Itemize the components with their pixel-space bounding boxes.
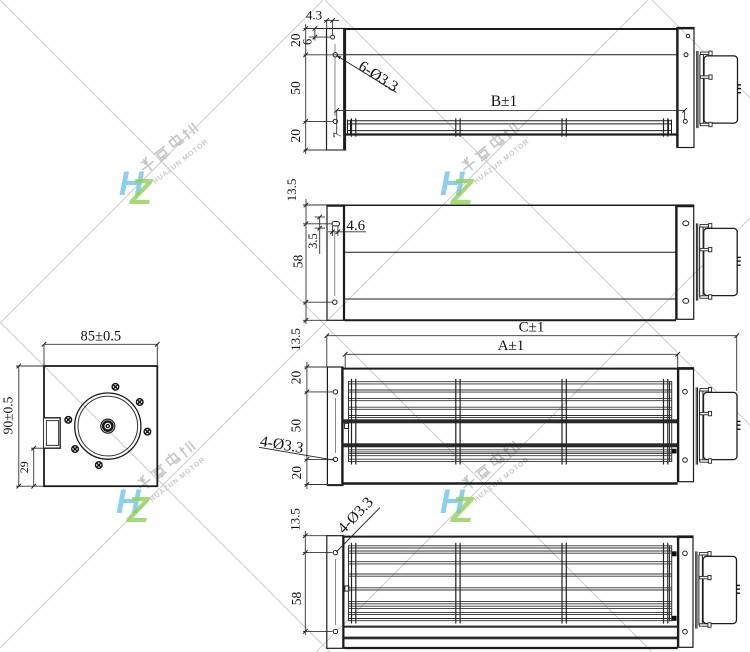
- svg-text:A±1: A±1: [498, 338, 525, 354]
- svg-text:50: 50: [288, 81, 303, 95]
- svg-text:58: 58: [289, 592, 304, 606]
- svg-text:6: 6: [300, 39, 314, 45]
- svg-text:7: 7: [332, 132, 344, 138]
- svg-text:20: 20: [289, 371, 304, 385]
- svg-text:58: 58: [290, 255, 305, 269]
- svg-text:C±1: C±1: [519, 320, 545, 336]
- svg-text:3.5: 3.5: [306, 233, 320, 249]
- svg-text:29: 29: [17, 461, 31, 473]
- svg-text:20: 20: [288, 129, 303, 143]
- svg-text:4.3: 4.3: [306, 7, 322, 22]
- svg-text:85±0.5: 85±0.5: [81, 329, 122, 345]
- svg-text:50: 50: [289, 419, 304, 433]
- svg-text:13.5: 13.5: [288, 328, 303, 351]
- svg-text:20: 20: [289, 466, 304, 480]
- svg-text:13.5: 13.5: [284, 179, 299, 202]
- svg-text:13.5: 13.5: [288, 508, 303, 531]
- svg-text:B±1: B±1: [491, 93, 518, 110]
- svg-text:4.6: 4.6: [346, 218, 365, 234]
- svg-text:90±0.5: 90±0.5: [1, 396, 16, 434]
